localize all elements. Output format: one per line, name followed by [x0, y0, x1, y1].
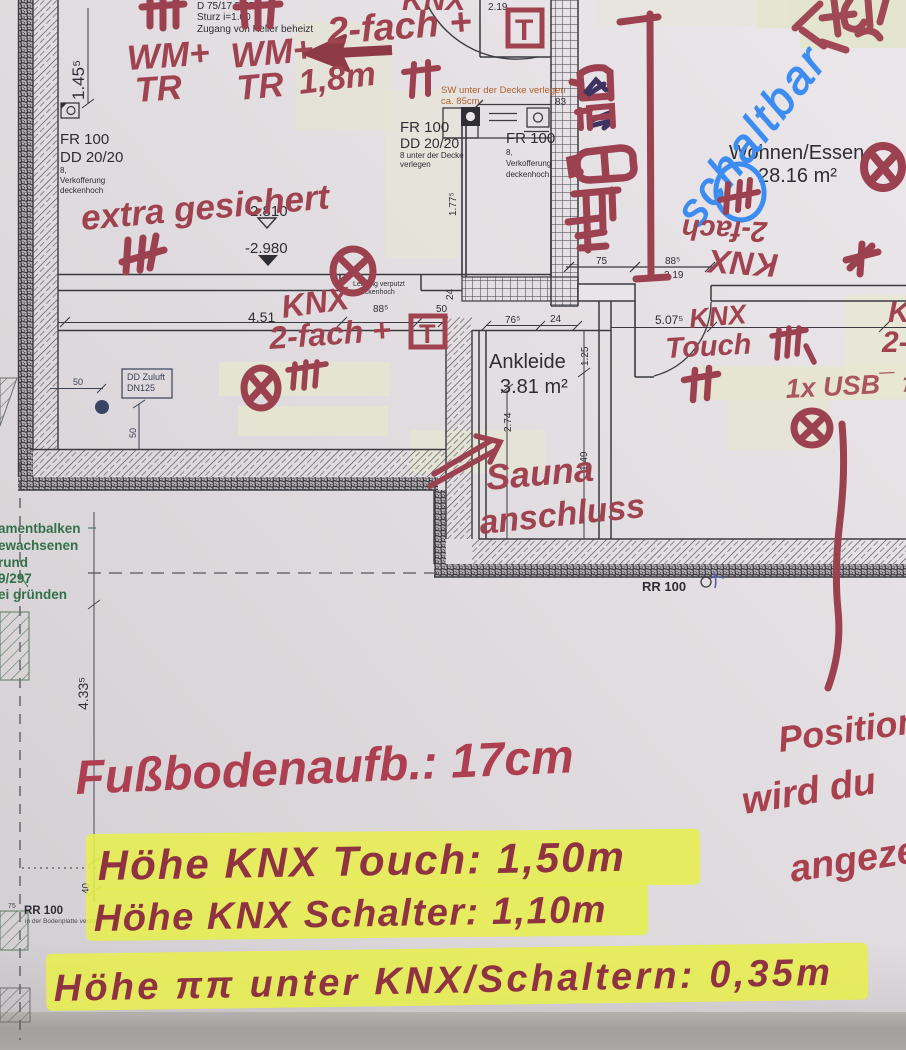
svg-text:FR 100: FR 100	[60, 131, 109, 148]
svg-text:FR 100: FR 100	[506, 130, 555, 147]
svg-text:KNX: KNX	[705, 243, 779, 285]
svg-text:50: 50	[73, 377, 83, 387]
svg-text:deckenhoch: deckenhoch	[506, 170, 549, 179]
svg-text:ewachsenen: ewachsenen	[0, 538, 78, 553]
svg-text:amentbalken: amentbalken	[0, 521, 81, 536]
svg-text:88⁵: 88⁵	[665, 256, 680, 267]
svg-text:K: K	[888, 296, 906, 329]
svg-text:Ankleide: Ankleide	[489, 351, 566, 373]
svg-text:83: 83	[555, 97, 567, 108]
svg-text:rund: rund	[0, 555, 28, 570]
svg-text:DD 20/20: DD 20/20	[60, 149, 123, 166]
svg-text:2.19: 2.19	[488, 2, 508, 13]
svg-text:T: T	[419, 319, 436, 349]
svg-text:1.77⁵: 1.77⁵	[448, 192, 459, 216]
svg-text:T: T	[515, 14, 533, 47]
svg-text:Höhe KNX Touch: 1,50m: Höhe KNX Touch: 1,50m	[97, 833, 626, 889]
svg-text:Verkofferung: Verkofferung	[60, 176, 105, 185]
svg-text:1.45⁵: 1.45⁵	[69, 60, 88, 100]
svg-text:-2.980: -2.980	[245, 240, 288, 257]
svg-text:50: 50	[436, 304, 448, 315]
svg-text:8,: 8,	[506, 148, 513, 157]
svg-text:8 unter der Decke: 8 unter der Decke	[400, 151, 464, 160]
svg-text:2-: 2-	[881, 326, 906, 359]
svg-text:9/297: 9/297	[0, 571, 32, 586]
svg-text:verlegen: verlegen	[400, 160, 431, 169]
svg-text:TR: TR	[134, 68, 184, 110]
svg-text:24: 24	[550, 314, 562, 325]
svg-text:5.07⁵: 5.07⁵	[655, 313, 683, 327]
svg-text:1.25: 1.25	[580, 346, 591, 366]
svg-text:1x USB¯ π: 1x USB¯ π	[785, 367, 906, 404]
svg-text:50: 50	[128, 428, 138, 438]
svg-text:Touch: Touch	[665, 329, 752, 365]
svg-text:Höhe KNX Schalter: 1,10m: Höhe KNX Schalter: 1,10m	[93, 889, 607, 940]
svg-text:2.74: 2.74	[503, 412, 514, 432]
svg-text:DD Zuluft: DD Zuluft	[127, 372, 166, 382]
svg-text:FR 100: FR 100	[400, 119, 449, 136]
svg-text:75: 75	[8, 903, 16, 910]
svg-text:75: 75	[596, 256, 608, 267]
svg-text:SW unter der Decke verlegen: SW unter der Decke verlegen	[441, 85, 566, 96]
svg-text:ca. 85cm: ca. 85cm	[441, 96, 480, 107]
svg-text:DN125: DN125	[127, 383, 155, 393]
svg-text:3.81 m²: 3.81 m²	[500, 376, 568, 398]
svg-text:28.16 m²: 28.16 m²	[758, 165, 837, 187]
svg-text:4.33⁵: 4.33⁵	[75, 677, 91, 710]
svg-text:DD 20/20: DD 20/20	[400, 135, 459, 151]
svg-text:8,: 8,	[60, 166, 67, 175]
svg-text:TR: TR	[235, 65, 286, 108]
svg-text:ei gründen: ei gründen	[0, 587, 67, 602]
svg-text:deckenhoch: deckenhoch	[60, 186, 103, 195]
svg-text:76⁵: 76⁵	[505, 315, 520, 326]
svg-text:24: 24	[445, 288, 456, 300]
svg-text:RR 100: RR 100	[24, 905, 63, 917]
svg-text:2-fach: 2-fach	[681, 212, 768, 247]
svg-text:Verkofferung: Verkofferung	[506, 159, 551, 168]
svg-text:RR 100: RR 100	[642, 579, 686, 594]
